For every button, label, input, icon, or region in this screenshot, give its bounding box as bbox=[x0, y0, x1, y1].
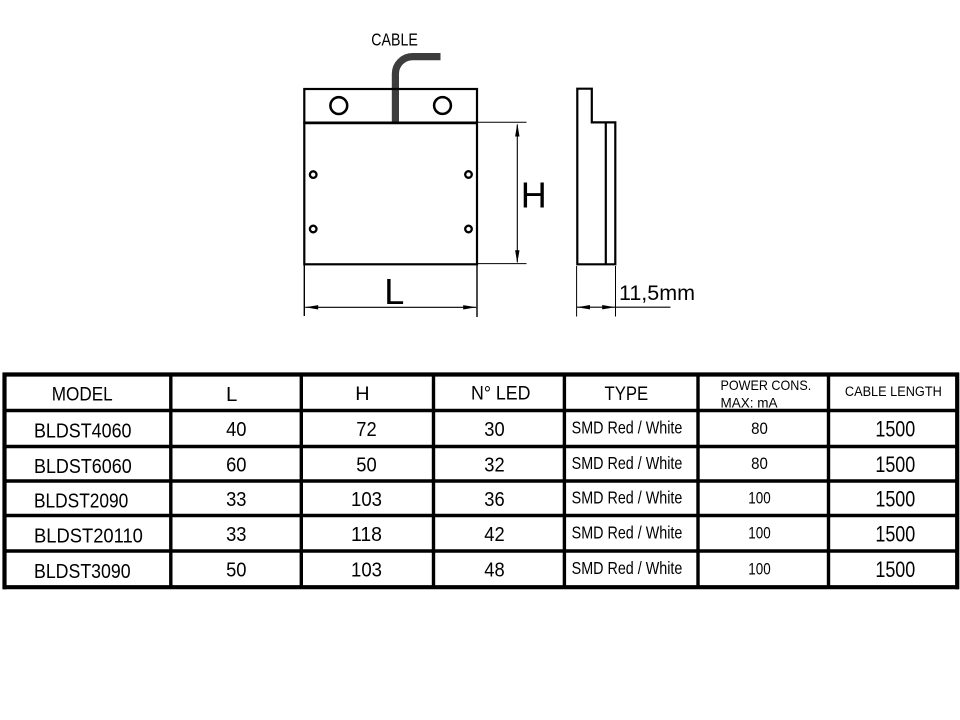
svg-text:MAX: mA: MAX: mA bbox=[721, 395, 779, 410]
svg-text:H: H bbox=[521, 175, 547, 216]
svg-text:50: 50 bbox=[356, 453, 376, 476]
svg-text:1500: 1500 bbox=[875, 417, 915, 442]
svg-text:SMD Red / White: SMD Red / White bbox=[572, 487, 683, 507]
svg-text:100: 100 bbox=[748, 560, 770, 578]
svg-text:N° LED: N° LED bbox=[471, 383, 531, 405]
svg-text:BLDST20110: BLDST20110 bbox=[34, 525, 143, 547]
svg-text:TYPE: TYPE bbox=[605, 383, 649, 405]
svg-text:80: 80 bbox=[751, 420, 768, 438]
svg-text:H: H bbox=[355, 383, 369, 405]
svg-text:MODEL: MODEL bbox=[52, 384, 113, 406]
svg-text:1500: 1500 bbox=[875, 557, 915, 582]
svg-text:32: 32 bbox=[484, 453, 504, 476]
svg-text:CABLE LENGTH: CABLE LENGTH bbox=[845, 384, 942, 400]
svg-text:33: 33 bbox=[226, 523, 246, 546]
svg-text:100: 100 bbox=[748, 490, 770, 508]
svg-text:100: 100 bbox=[748, 525, 770, 543]
svg-text:POWER CONS.: POWER CONS. bbox=[721, 377, 812, 393]
svg-text:SMD Red / White: SMD Red / White bbox=[572, 558, 683, 578]
svg-text:42: 42 bbox=[484, 523, 504, 546]
svg-text:33: 33 bbox=[226, 488, 246, 511]
svg-text:103: 103 bbox=[351, 488, 382, 511]
svg-text:BLDST2090: BLDST2090 bbox=[34, 490, 128, 512]
svg-text:BLDST6060: BLDST6060 bbox=[34, 456, 132, 478]
svg-text:L: L bbox=[384, 271, 404, 312]
svg-text:L: L bbox=[226, 384, 237, 406]
svg-text:1500: 1500 bbox=[875, 452, 915, 477]
svg-text:11,5mm: 11,5mm bbox=[619, 282, 695, 305]
svg-text:72: 72 bbox=[356, 418, 376, 441]
svg-text:80: 80 bbox=[751, 455, 768, 473]
svg-text:60: 60 bbox=[226, 453, 246, 476]
svg-text:48: 48 bbox=[484, 559, 504, 582]
svg-text:SMD Red / White: SMD Red / White bbox=[572, 453, 683, 473]
svg-text:50: 50 bbox=[226, 559, 246, 582]
svg-text:1500: 1500 bbox=[875, 486, 915, 511]
svg-text:40: 40 bbox=[226, 418, 246, 441]
svg-text:103: 103 bbox=[351, 559, 382, 582]
svg-text:1500: 1500 bbox=[875, 521, 915, 546]
svg-text:30: 30 bbox=[484, 418, 504, 441]
svg-text:36: 36 bbox=[484, 488, 504, 511]
svg-text:BLDST3090: BLDST3090 bbox=[34, 561, 131, 583]
svg-text:BLDST4060: BLDST4060 bbox=[34, 421, 132, 443]
svg-text:118: 118 bbox=[351, 523, 382, 546]
svg-text:SMD Red / White: SMD Red / White bbox=[572, 522, 683, 542]
svg-text:CABLE: CABLE bbox=[371, 30, 418, 50]
svg-text:SMD Red / White: SMD Red / White bbox=[572, 418, 683, 438]
